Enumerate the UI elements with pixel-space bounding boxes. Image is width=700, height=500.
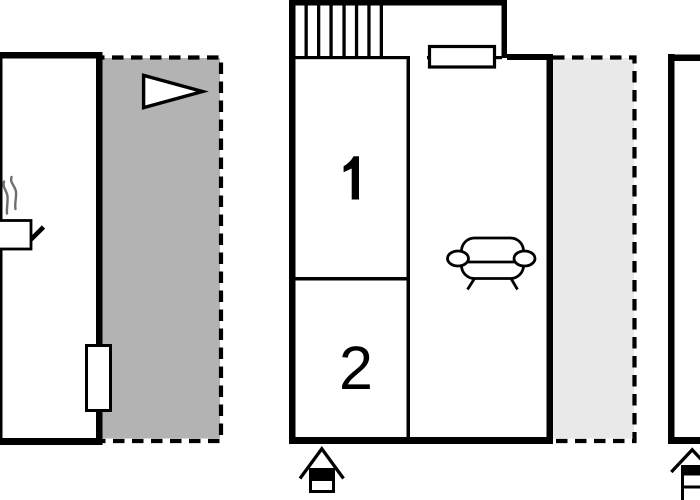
svg-text:2: 2	[339, 334, 373, 402]
